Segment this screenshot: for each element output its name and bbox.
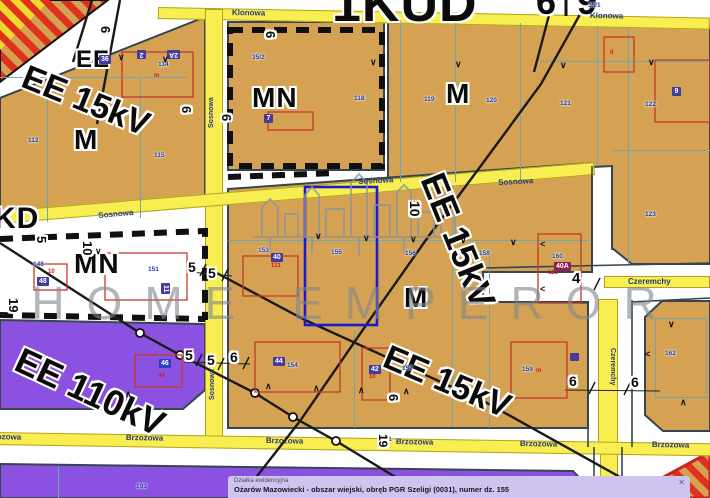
parcel-number[interactable]: 123 (645, 212, 656, 219)
street-label: Brzozowa (396, 438, 433, 447)
address-badge: 36 (99, 55, 111, 64)
dimension-label: 6 (99, 26, 112, 33)
powerline-label: EE 110kV (10, 342, 170, 442)
street-label: Brzozowa (652, 441, 689, 450)
street-label: Klonowa (590, 12, 623, 21)
dimension-label: 6 (264, 31, 277, 38)
close-icon[interactable]: ✕ (678, 478, 685, 487)
zone-label: M (446, 80, 470, 108)
boundary-tick: < (645, 350, 650, 359)
zone-label: 6 (536, 0, 557, 20)
map-labels: 1KUD69EEMMNMKDMNMEE 15kVEE 15kVEE 110kVE… (0, 0, 710, 498)
red-mark: m (536, 368, 541, 374)
dimension-label: 10 (81, 241, 94, 255)
parcel-number[interactable]: 119 (424, 97, 435, 104)
dimension-label: 6 (230, 350, 238, 364)
red-mark: 10 (48, 269, 55, 275)
street-label: Brzozowa (266, 437, 303, 446)
dimension-label: 6 (387, 394, 400, 401)
address-badge: 46 (159, 359, 171, 368)
powerline-label: EE 15kV (379, 340, 516, 424)
boundary-tick: ∧ (358, 386, 365, 395)
street-label: Sosnowa (498, 177, 533, 187)
street-label: Czeremchy (609, 348, 616, 385)
parcel-number[interactable]: 159 (522, 367, 533, 374)
parcel-number[interactable]: 153 (258, 248, 269, 255)
parcel-number[interactable]: 156 (405, 251, 416, 258)
parcel-number[interactable]: 122 (645, 102, 656, 109)
dimension-label: 5 (188, 260, 196, 274)
address-badge: 9 (672, 87, 681, 96)
zone-label: M (74, 126, 98, 154)
red-mark: II (610, 50, 613, 56)
boundary-tick: ∨ (460, 236, 467, 245)
dimension-label: 5 (35, 236, 48, 243)
parcel-number[interactable]: 158 (479, 251, 490, 258)
boundary-tick: ∨ (363, 234, 370, 243)
boundary-tick: ∨ (560, 61, 567, 70)
address-badge: 2A (167, 50, 180, 59)
street-label: Klonowa (232, 9, 265, 18)
boundary-tick: ∨ (315, 232, 322, 241)
dimension-label: 6 (220, 114, 233, 121)
parcel-number[interactable]: 151 (148, 267, 159, 274)
boundary-tick: ∨ (648, 58, 655, 67)
dimension-label: 5 (207, 353, 215, 367)
dimension-label: 19 (377, 434, 389, 447)
address-badge: 40 (271, 253, 283, 262)
dimension-label: 5 (185, 348, 193, 362)
street-label: Brzozowa (520, 440, 557, 449)
zone-label: MN (252, 84, 298, 112)
address-badge: 42 (369, 365, 381, 374)
street-label: Brzozowa (0, 433, 21, 442)
parcel-number[interactable]: 35/1 (588, 3, 601, 10)
dimension-label: 10 (408, 201, 422, 217)
parcel-number[interactable]: 160 (552, 254, 563, 261)
red-mark: 10 (369, 374, 376, 380)
parcel-number[interactable]: 118 (354, 96, 365, 103)
street-label: Sosnowa (98, 209, 134, 220)
info-panel-title: Działka ewidencyjna (234, 478, 684, 484)
dimension-label: 6 (180, 106, 193, 113)
parcel-info-panel: Działka ewidencyjna ✕ Ożarów Mazowiecki … (228, 476, 690, 498)
info-panel-description: Ożarów Mazowiecki - obszar wiejski, obrę… (234, 485, 684, 494)
dimension-label: 6 (631, 375, 639, 389)
boundary-tick: ∨ (455, 60, 462, 69)
zone-label: KD (0, 204, 39, 234)
boundary-tick: ∧ (403, 387, 410, 396)
street-label: Sosnowa (209, 369, 216, 400)
map-canvas[interactable]: 1KUD69EEMMNMKDMNMEE 15kVEE 15kVEE 110kVE… (0, 0, 710, 498)
zone-label: 1KUD (332, 0, 478, 30)
boundary-tick: ∨ (95, 247, 102, 256)
boundary-tick: ∨ (510, 238, 517, 247)
street-label: Sosnowa (208, 97, 215, 128)
dimension-label: 6 (569, 374, 577, 388)
boundary-tick: ∨ (370, 58, 377, 67)
parcel-number[interactable]: 155 (331, 250, 342, 257)
parcel-number[interactable]: 115 (154, 153, 165, 160)
parcel-number[interactable]: 157 (402, 366, 413, 373)
watermark: HOME EMPEROR (0, 276, 710, 330)
boundary-tick: < (540, 240, 545, 249)
boundary-tick: ∧ (680, 398, 687, 407)
boundary-tick: ∧ (125, 390, 132, 399)
parcel-number[interactable]: 154 (287, 363, 298, 370)
parcel-number[interactable]: 35/2 (252, 55, 265, 62)
boundary-tick: ∨ (410, 235, 417, 244)
parcel-number[interactable]: 148 (33, 262, 44, 269)
boundary-tick: ∧ (265, 382, 272, 391)
address-badge: 2 (137, 50, 146, 59)
address-badge: 7 (264, 114, 273, 123)
parcel-number[interactable]: 121 (560, 101, 571, 108)
red-mark: 44 (158, 373, 165, 379)
red-mark: m (154, 73, 159, 79)
parcel-number[interactable]: 193 (136, 484, 147, 491)
address-badge: 44 (273, 357, 285, 366)
parcel-number[interactable]: 120 (486, 98, 497, 105)
red-mark: 121 (271, 263, 281, 269)
street-label: Sosnowa (358, 176, 393, 186)
boundary-tick: ∧ (313, 384, 320, 393)
parcel-number[interactable]: 162 (665, 351, 676, 358)
boundary-tick: ∨ (162, 55, 169, 64)
street-label: Brzozowa (126, 434, 163, 443)
parcel-number[interactable]: 112 (28, 138, 39, 145)
address-badge (570, 353, 579, 361)
boundary-tick: ∨ (118, 53, 125, 62)
